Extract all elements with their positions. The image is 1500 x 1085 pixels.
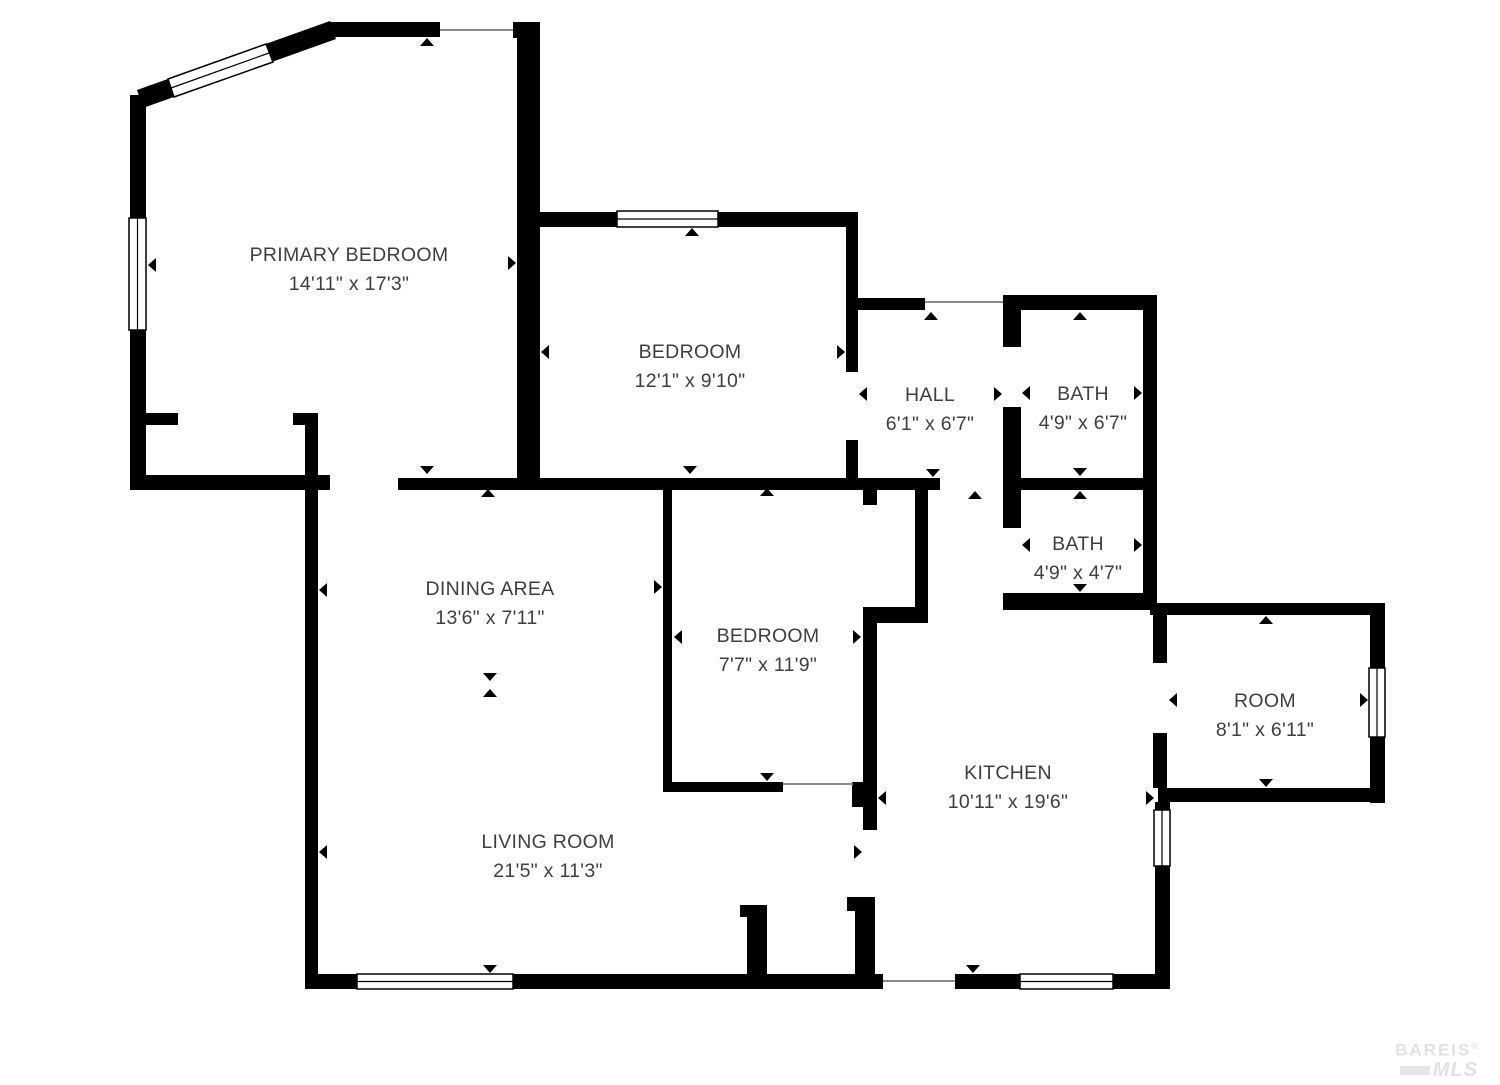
wall bbox=[846, 212, 858, 372]
watermark-sub-text: MLS bbox=[1433, 1060, 1478, 1080]
walls bbox=[130, 21, 1385, 989]
room-name: ROOM bbox=[1216, 687, 1314, 716]
wall bbox=[955, 974, 1020, 989]
room-name: HALL bbox=[886, 381, 975, 410]
dimension-arrow-left-icon bbox=[1022, 538, 1030, 552]
dimension-arrows bbox=[148, 38, 1368, 973]
watermark-sub: MLS bbox=[1395, 1060, 1478, 1080]
wall bbox=[1153, 733, 1167, 788]
wall bbox=[858, 298, 925, 310]
room-label-bedroom-1: BEDROOM 12'1" x 9'10" bbox=[635, 338, 746, 396]
watermark-brand: BAREIS® bbox=[1395, 1037, 1478, 1060]
room-dimensions: 8'1" x 6'11" bbox=[1216, 716, 1314, 745]
dimension-arrow-right-icon bbox=[1146, 791, 1154, 805]
room-name: BATH bbox=[1034, 530, 1123, 559]
wall bbox=[1003, 295, 1157, 310]
wall bbox=[915, 490, 928, 623]
wall bbox=[1155, 866, 1170, 989]
dimension-arrow-left-icon bbox=[148, 258, 156, 272]
room-dimensions: 7'7" x 11'9" bbox=[717, 651, 820, 680]
wall bbox=[855, 897, 875, 989]
room-dimensions: 6'1" x 6'7" bbox=[886, 410, 975, 439]
room-name: BATH bbox=[1039, 380, 1128, 409]
wall bbox=[513, 974, 747, 989]
dimension-arrow-down-icon bbox=[760, 773, 774, 781]
dimension-arrow-right-icon bbox=[1134, 386, 1142, 400]
wall bbox=[1003, 310, 1021, 347]
wall bbox=[846, 478, 940, 490]
room-dimensions: 12'1" x 9'10" bbox=[635, 367, 746, 396]
dimension-arrow-down-icon bbox=[683, 466, 697, 474]
room-label-kitchen: KITCHEN 10'11" x 19'6" bbox=[948, 759, 1069, 817]
dimension-arrow-left-icon bbox=[859, 387, 867, 401]
dimension-arrow-right-icon bbox=[837, 345, 845, 359]
registered-trademark-icon: ® bbox=[1471, 1041, 1478, 1051]
dimension-arrow-down-icon bbox=[420, 466, 434, 474]
wall bbox=[1158, 788, 1383, 802]
dimension-arrow-right-icon bbox=[654, 580, 662, 594]
wall bbox=[130, 475, 330, 490]
dimension-arrow-left-icon bbox=[1169, 693, 1177, 707]
wall bbox=[305, 974, 357, 989]
dimension-arrow-down-icon bbox=[483, 965, 497, 973]
dimension-arrow-down-icon bbox=[966, 965, 980, 973]
dimension-arrow-right-icon bbox=[1360, 693, 1368, 707]
dimension-arrow-down-icon bbox=[483, 673, 497, 681]
room-dimensions: 21'5" x 11'3" bbox=[481, 857, 614, 886]
wall bbox=[1155, 802, 1170, 810]
room-label-bedroom-2: BEDROOM 7'7" x 11'9" bbox=[717, 622, 820, 680]
dimension-arrow-up-icon bbox=[1073, 312, 1087, 320]
room-label-living-room: LIVING ROOM 21'5" x 11'3" bbox=[481, 828, 614, 886]
dimension-arrow-right-icon bbox=[854, 845, 862, 859]
window-pane bbox=[171, 53, 269, 88]
room-dimensions: 13'6" x 7'11" bbox=[426, 604, 555, 633]
watermark-logo: BAREIS® MLS bbox=[1395, 1037, 1478, 1080]
room-name: BEDROOM bbox=[717, 622, 820, 651]
dimension-arrow-up-icon bbox=[685, 228, 699, 236]
wall bbox=[863, 490, 877, 505]
dimension-arrow-right-icon bbox=[994, 387, 1002, 401]
dimension-arrow-down-icon bbox=[926, 469, 940, 477]
room-label-bath-1: BATH 4'9" x 6'7" bbox=[1039, 380, 1128, 438]
wall bbox=[863, 607, 877, 830]
wall bbox=[327, 22, 440, 37]
wall bbox=[1370, 603, 1385, 668]
room-label-hall: HALL 6'1" x 6'7" bbox=[886, 381, 975, 439]
wall bbox=[305, 420, 318, 478]
wall bbox=[398, 478, 846, 490]
room-name: PRIMARY BEDROOM bbox=[250, 241, 449, 270]
dimension-arrow-left-icon bbox=[1022, 386, 1030, 400]
wall bbox=[1153, 615, 1167, 663]
wall bbox=[718, 212, 858, 227]
dimension-arrow-up-icon bbox=[420, 38, 434, 46]
dimension-arrow-up-icon bbox=[481, 489, 495, 497]
room-label-bath-2: BATH 4'9" x 4'7" bbox=[1034, 530, 1123, 588]
dimension-arrow-up-icon bbox=[924, 312, 938, 320]
wall bbox=[1017, 478, 1143, 490]
room-dimensions: 10'11" x 19'6" bbox=[948, 788, 1069, 817]
wall bbox=[130, 330, 146, 490]
room-dimensions: 4'9" x 6'7" bbox=[1039, 409, 1128, 438]
room-name: DINING AREA bbox=[426, 575, 555, 604]
dimension-arrow-down-icon bbox=[1259, 779, 1273, 787]
wall bbox=[663, 487, 672, 790]
room-name: LIVING ROOM bbox=[481, 828, 614, 857]
wall bbox=[540, 212, 617, 227]
room-label-room: ROOM 8'1" x 6'11" bbox=[1216, 687, 1314, 745]
floorplan-svg bbox=[0, 0, 1500, 1085]
wall bbox=[1143, 295, 1157, 595]
dimension-arrow-left-icon bbox=[541, 345, 549, 359]
wall bbox=[130, 95, 146, 220]
room-dimensions: 14'11" x 17'3" bbox=[250, 270, 449, 299]
room-label-primary-bedroom: PRIMARY BEDROOM 14'11" x 17'3" bbox=[250, 241, 449, 299]
floorplan: PRIMARY BEDROOM 14'11" x 17'3" BEDROOM 1… bbox=[0, 0, 1500, 1085]
dimension-arrow-up-icon bbox=[1259, 616, 1273, 624]
dimension-arrow-up-icon bbox=[1073, 491, 1087, 499]
wall bbox=[1113, 974, 1170, 989]
watermark-bar-icon bbox=[1400, 1066, 1430, 1075]
dimension-arrow-up-icon bbox=[483, 689, 497, 697]
dimension-arrow-down-icon bbox=[1073, 468, 1087, 476]
wall bbox=[517, 22, 540, 478]
dimension-arrow-right-icon bbox=[1134, 538, 1142, 552]
room-dimensions: 4'9" x 4'7" bbox=[1034, 559, 1123, 588]
dimension-arrow-up-icon bbox=[968, 491, 982, 499]
dimension-arrow-right-icon bbox=[508, 256, 516, 270]
wall bbox=[1003, 407, 1021, 528]
room-name: BEDROOM bbox=[635, 338, 746, 367]
dimension-arrow-left-icon bbox=[319, 583, 327, 597]
dimension-arrow-left-icon bbox=[319, 845, 327, 859]
wall bbox=[305, 475, 318, 989]
room-label-dining-area: DINING AREA 13'6" x 7'11" bbox=[426, 575, 555, 633]
dimension-arrow-left-icon bbox=[878, 791, 886, 805]
wall bbox=[1003, 593, 1157, 610]
watermark-brand-text: BAREIS bbox=[1395, 1041, 1471, 1060]
dimension-arrow-right-icon bbox=[853, 630, 861, 644]
wall bbox=[663, 782, 783, 792]
wall bbox=[1150, 603, 1383, 615]
wall bbox=[146, 413, 178, 425]
dimension-arrow-left-icon bbox=[674, 630, 682, 644]
room-name: KITCHEN bbox=[948, 759, 1069, 788]
